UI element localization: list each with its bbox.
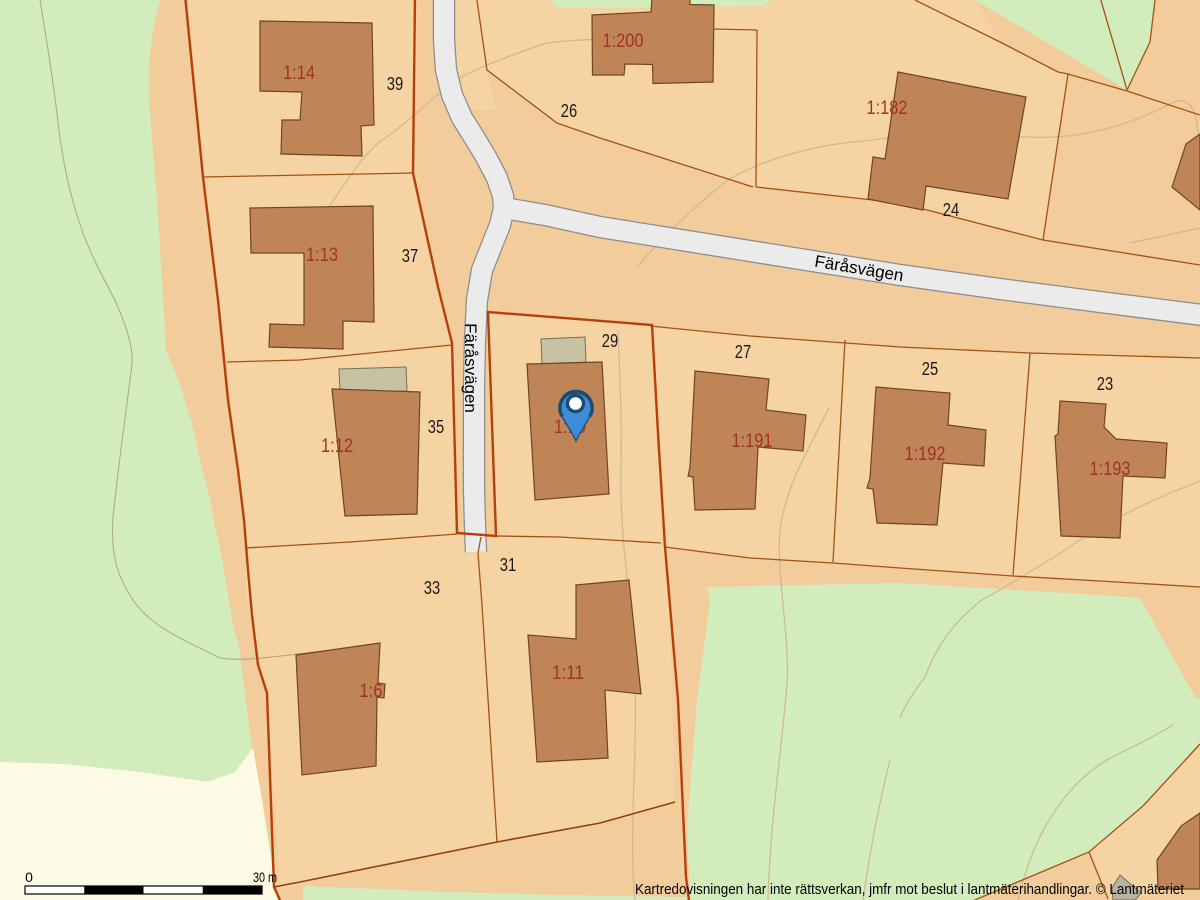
svg-text:31: 31	[500, 555, 516, 575]
svg-text:35: 35	[428, 417, 444, 437]
svg-text:Färåsvägen: Färåsvägen	[461, 323, 480, 413]
svg-text:1:13: 1:13	[306, 244, 338, 266]
svg-text:1:11: 1:11	[552, 662, 584, 684]
svg-text:26: 26	[561, 101, 577, 121]
svg-text:25: 25	[922, 359, 938, 379]
svg-text:23: 23	[1097, 374, 1113, 394]
svg-text:29: 29	[602, 331, 618, 351]
svg-text:1:193: 1:193	[1090, 458, 1131, 480]
svg-text:1:191: 1:191	[732, 430, 773, 452]
svg-text:1:182: 1:182	[867, 97, 908, 119]
svg-text:1:200: 1:200	[603, 30, 644, 52]
svg-text:1:192: 1:192	[905, 443, 946, 465]
svg-text:1:12: 1:12	[321, 435, 353, 457]
svg-text:27: 27	[735, 342, 751, 362]
svg-text:0: 0	[25, 869, 33, 885]
svg-text:33: 33	[424, 578, 440, 598]
svg-text:Kartredovisningen har inte rät: Kartredovisningen har inte rättsverkan, …	[635, 881, 1185, 898]
svg-text:1:14: 1:14	[283, 62, 315, 84]
svg-text:24: 24	[943, 200, 959, 220]
svg-text:39: 39	[387, 74, 403, 94]
svg-text:37: 37	[402, 246, 418, 266]
svg-text:30 m: 30 m	[253, 869, 277, 885]
svg-text:1:6: 1:6	[360, 680, 383, 702]
